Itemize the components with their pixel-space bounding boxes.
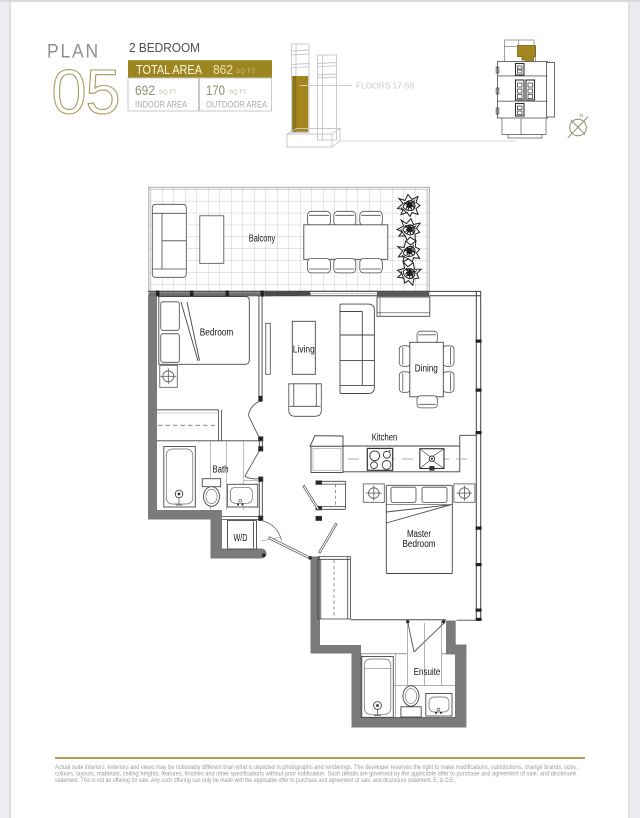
svg-text:Dining: Dining [415,364,438,375]
svg-text:Balcony: Balcony [249,234,276,245]
svg-text:Living: Living [293,345,315,356]
svg-text:Bedroom: Bedroom [200,328,234,339]
svg-text:2 BEDROOM: 2 BEDROOM [129,41,200,55]
svg-text:TOTAL AREA: TOTAL AREA [136,63,203,77]
svg-text:colours, layouts, materials, c: colours, layouts, materials, ceiling hei… [55,772,577,778]
svg-text:OUTDOOR AREA: OUTDOOR AREA [206,99,267,109]
svg-text:W/D: W/D [234,533,248,544]
svg-text:Bath: Bath [213,465,229,476]
svg-text:692: 692 [135,83,155,98]
svg-text:Actual suite interiors, exteri: Actual suite interiors, exteriors and vi… [55,765,578,771]
svg-text:N: N [580,114,584,120]
svg-text:SQ FT: SQ FT [229,90,247,96]
svg-text:Kitchen: Kitchen [372,433,398,444]
svg-text:170: 170 [206,83,225,98]
svg-text:SQ FT: SQ FT [236,69,256,75]
svg-text:INDOOR AREA: INDOOR AREA [135,99,187,109]
svg-text:Ensuite: Ensuite [414,667,441,678]
svg-text:Bedroom: Bedroom [403,539,436,550]
svg-text:FLOORS 17-59: FLOORS 17-59 [356,82,414,91]
svg-text:05: 05 [52,58,120,128]
svg-text:statement. This is not an offe: statement. This is not an offering for s… [55,778,455,784]
svg-text:862: 862 [213,63,233,77]
svg-text:SQ FT: SQ FT [159,90,177,96]
